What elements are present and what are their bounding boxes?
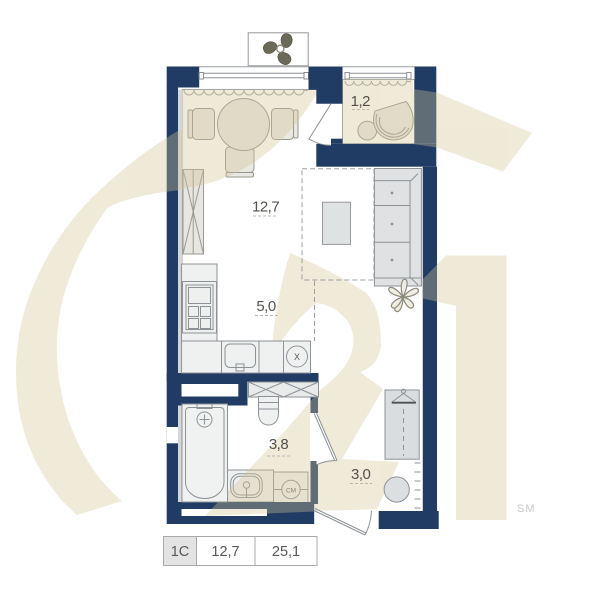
- svg-text:5,0: 5,0: [256, 298, 276, 315]
- svg-text:1С: 1С: [171, 544, 190, 560]
- svg-text:X: X: [294, 352, 300, 362]
- svg-text:1,2: 1,2: [351, 93, 371, 110]
- svg-text:SM: SM: [517, 503, 536, 515]
- svg-text:3,0: 3,0: [351, 466, 371, 483]
- svg-text:12,7: 12,7: [211, 544, 239, 560]
- svg-text:12,7: 12,7: [252, 199, 279, 216]
- svg-text:25,1: 25,1: [272, 544, 300, 560]
- svg-text:3,8: 3,8: [269, 436, 289, 453]
